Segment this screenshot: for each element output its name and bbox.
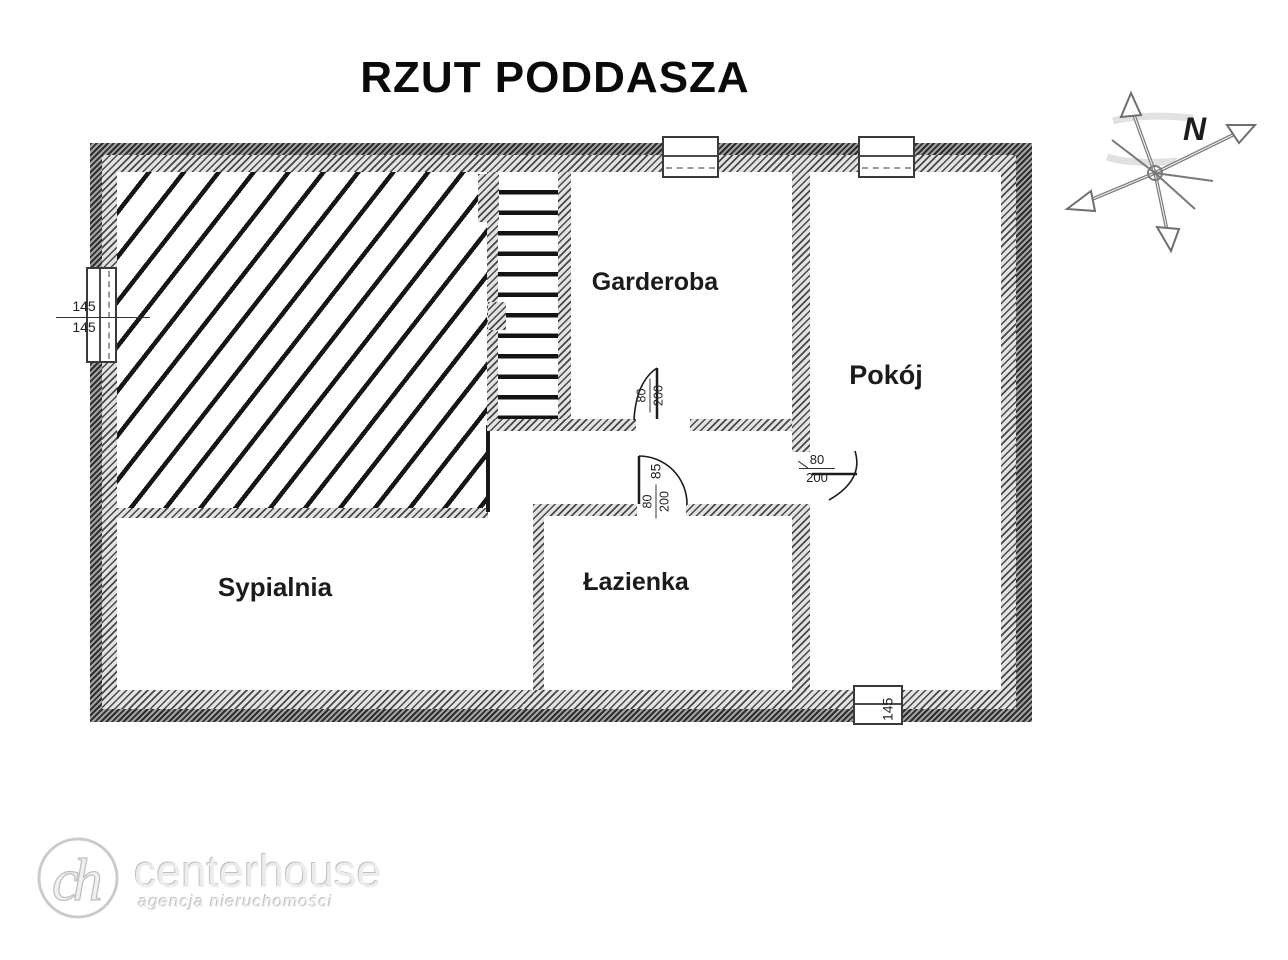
agency-logo-icon: ch — [36, 834, 131, 929]
bottom-window-dimension: 145 — [880, 698, 895, 721]
door-width: 80 — [635, 389, 649, 403]
door-height: 200 — [652, 385, 666, 406]
dimension-value: 145 — [62, 299, 106, 314]
door-width: 80 — [810, 452, 824, 467]
left-window-dimension: 145 — [62, 320, 106, 335]
room-label-sypialnia: Sypialnia — [218, 572, 332, 603]
compass-rose: N — [1055, 85, 1280, 255]
north-label: N — [1183, 111, 1207, 147]
lazienka-opening-dimension: 85 — [648, 464, 663, 480]
dimension-line — [56, 317, 150, 318]
door-height: 200 — [806, 470, 828, 485]
door-height: 200 — [658, 491, 672, 512]
lazienka-door-dimension: 80 200 — [641, 480, 672, 524]
door-width: 80 — [641, 495, 655, 509]
left-window-dimension: 145 — [62, 299, 106, 314]
room-label-pokoj: Pokój — [849, 360, 923, 391]
room-label-lazienka: Łazienka — [583, 568, 689, 597]
floor-plan-page: RZUT PODDASZA 80 200 — [0, 0, 1288, 960]
dimension-value: 145 — [62, 320, 106, 335]
agency-name: centerhouse — [134, 846, 382, 898]
garderoba-door-dimension: 80 200 — [635, 374, 666, 418]
logo-monogram: ch — [52, 847, 101, 913]
room-label-garderoba: Garderoba — [592, 268, 718, 297]
pokoj-door-dimension: 80 200 — [797, 452, 837, 485]
agency-tagline: agencja nieruchomości — [138, 892, 333, 912]
